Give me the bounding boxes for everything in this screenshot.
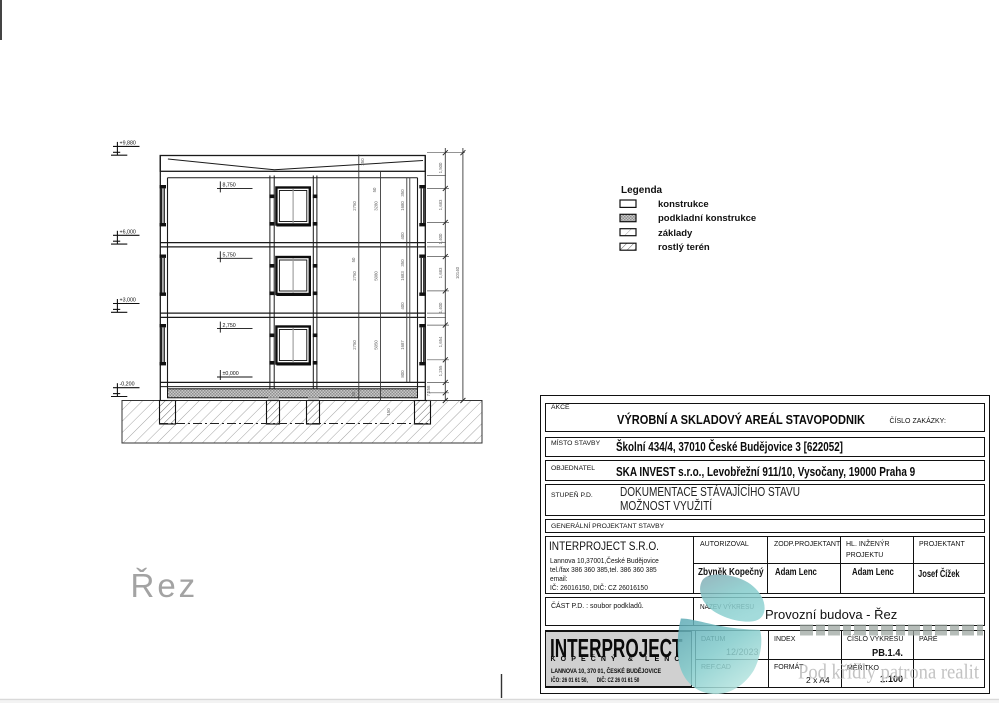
svg-text:Pod křídly patrona realit: Pod křídly patrona realit (798, 660, 979, 684)
